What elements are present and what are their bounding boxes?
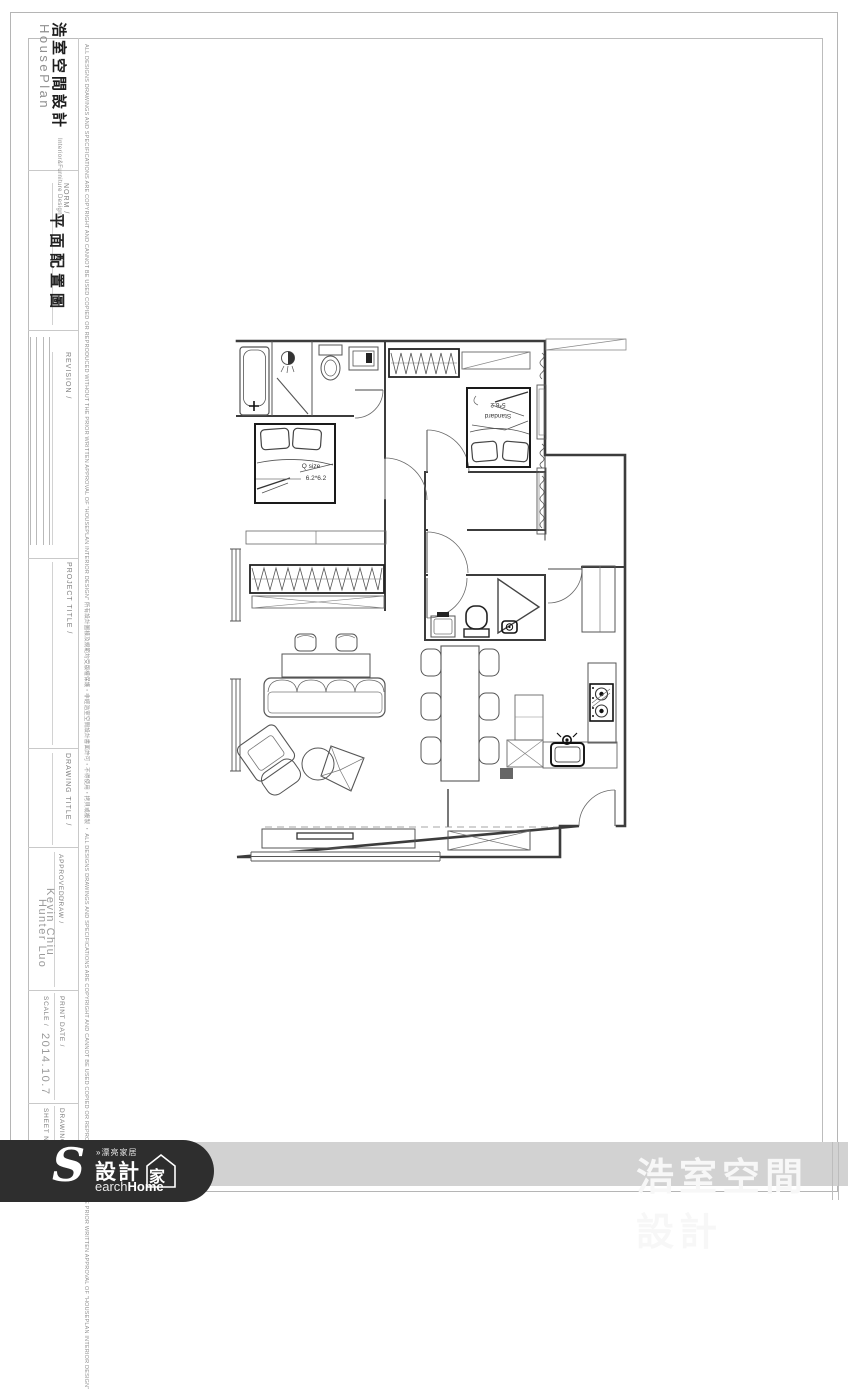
console-table xyxy=(282,654,370,677)
kitchen xyxy=(500,566,617,779)
dining-chair xyxy=(479,737,499,764)
dining-table xyxy=(441,646,479,781)
border-over-footer xyxy=(832,1142,833,1200)
tall-cabinet xyxy=(582,566,615,632)
stool xyxy=(295,634,316,651)
dining-area xyxy=(421,646,499,781)
pillow xyxy=(292,428,321,450)
sofa xyxy=(264,678,385,717)
tv xyxy=(297,833,353,839)
bathroom-2 xyxy=(431,579,539,637)
bedroom-2: 5*6.2 Standard xyxy=(389,349,530,467)
bathtub-faucet xyxy=(249,401,259,411)
armchair xyxy=(321,746,364,791)
kitchen-sink xyxy=(551,743,584,766)
dining-chair xyxy=(421,737,441,764)
bed-standard xyxy=(467,388,530,467)
dining-chair xyxy=(479,693,499,720)
window-squiggle xyxy=(540,476,544,528)
pillow xyxy=(260,428,289,450)
footer-company-name: 浩室空間設計 xyxy=(636,1146,848,1256)
bath1-door-leaf xyxy=(277,378,308,414)
bed2-size-label: 5*6.2 xyxy=(490,401,506,408)
master-bedroom: Q size 6.2*6.2 xyxy=(246,424,386,608)
shower-screen xyxy=(498,579,539,633)
logo-s-swoosh: S xyxy=(52,1142,85,1188)
window-squiggle xyxy=(540,353,544,379)
lounge-chair xyxy=(235,723,297,784)
wall-column xyxy=(500,768,513,779)
dining-chair xyxy=(421,693,441,720)
master-bed-type-label: Q size xyxy=(302,463,321,470)
toilet-bowl xyxy=(321,356,340,380)
toilet-bowl xyxy=(466,606,487,629)
ottoman xyxy=(258,755,304,798)
window-squiggle xyxy=(540,444,544,468)
toilet-tank xyxy=(464,629,489,637)
bed2-type-label: Standard xyxy=(484,412,511,419)
walls xyxy=(237,341,625,857)
balcony-strip xyxy=(546,339,626,350)
fridge xyxy=(515,695,543,740)
logo-home-char: 家 xyxy=(149,1163,165,1187)
stool xyxy=(336,634,357,651)
toilet-tank xyxy=(319,345,342,355)
bathroom-1 xyxy=(240,341,378,416)
pillow xyxy=(502,441,529,462)
pillow xyxy=(471,441,498,462)
master-bed-size-label: 6.2*6.2 xyxy=(306,475,327,482)
logo-earch: earch xyxy=(95,1179,128,1194)
dining-chair xyxy=(479,649,499,676)
border-over-footer xyxy=(838,1142,839,1200)
floor-plan: 5*6.2 Standard Q size 6.2*6.2 xyxy=(0,0,848,1200)
dining-chair xyxy=(421,649,441,676)
